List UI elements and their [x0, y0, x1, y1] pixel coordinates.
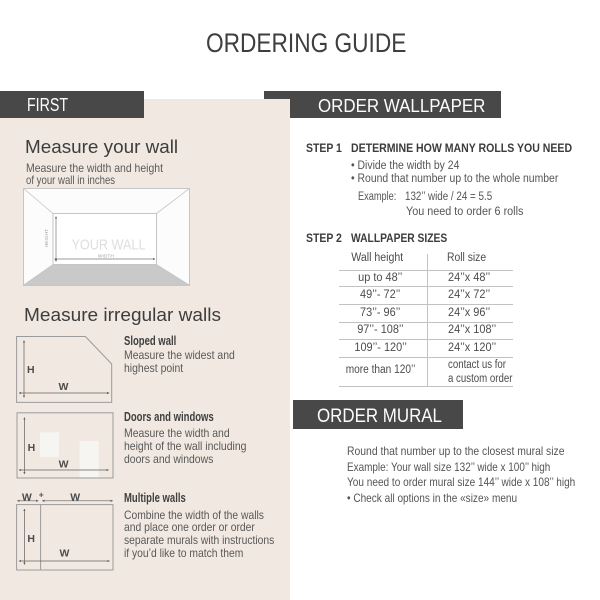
svg-text:W: W: [59, 548, 69, 560]
svg-text:+: +: [39, 490, 44, 500]
svg-text:W: W: [22, 491, 32, 503]
svg-text:H: H: [27, 364, 35, 376]
svg-text:HEIGHT: HEIGHT: [44, 229, 49, 248]
svg-text:WIDTH: WIDTH: [98, 253, 114, 258]
svg-text:H: H: [28, 442, 36, 454]
svg-text:YOUR WALL: YOUR WALL: [72, 237, 146, 254]
svg-text:W: W: [59, 459, 69, 471]
svg-text:H: H: [27, 533, 35, 545]
svg-text:W: W: [59, 381, 69, 393]
svg-text:W: W: [70, 491, 80, 503]
